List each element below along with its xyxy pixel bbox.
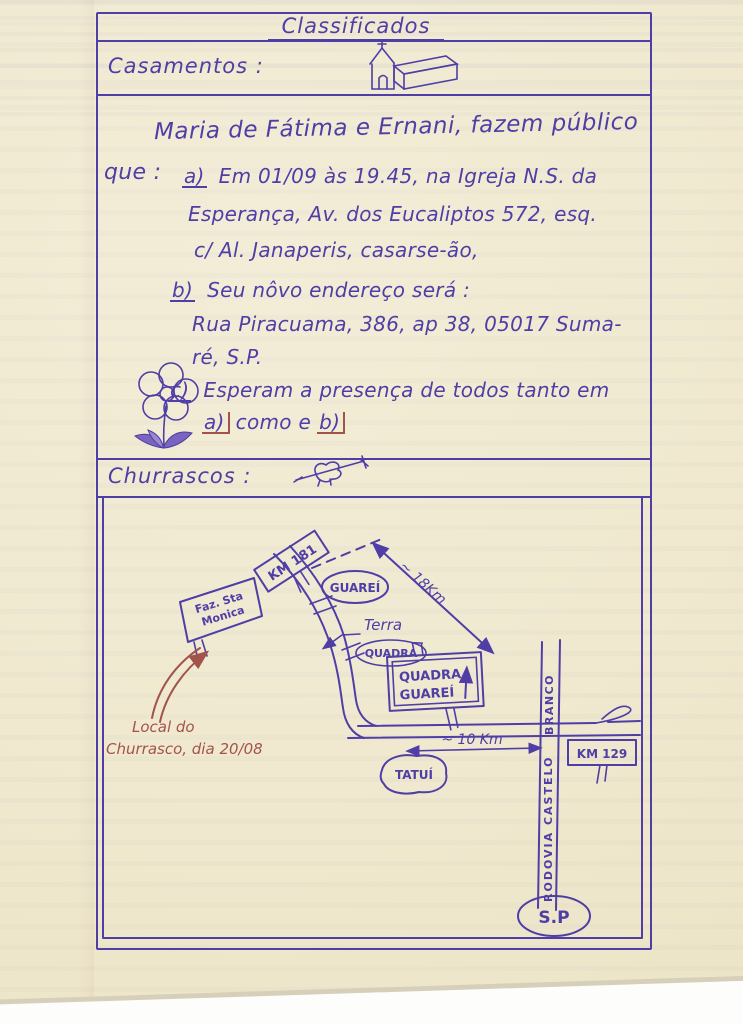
churrascos-label: Churrascos : xyxy=(108,464,251,488)
distance-arrow-10km xyxy=(408,748,540,751)
item-a-line3: c/ Al. Janaperis, casarse-ão, xyxy=(194,238,479,262)
highway-name-rodovia-castelo: RODOVIA CASTELO xyxy=(542,756,555,902)
quadra-oval: QUADRA xyxy=(356,640,426,666)
item-a-text: Em 01/09 às 19.45, na Igreja N.S. da xyxy=(219,164,598,188)
local-note-line1: Local do xyxy=(132,718,195,736)
item-c-line1: c)Esperam a presença de todos tanto em xyxy=(168,378,610,402)
announcement-headline: Maria de Fátima e Ernani, fazem público xyxy=(154,109,639,145)
red-arrow-to-farm xyxy=(152,648,200,718)
item-b-marker: b) xyxy=(170,280,195,302)
barbecue-skewer-icon xyxy=(290,450,376,492)
highway-name-branco: BRANCO xyxy=(543,674,556,735)
svg-text:GUAREÍ: GUAREÍ xyxy=(330,580,381,595)
item-a-line2: Esperança, Av. dos Eucaliptos 572, esq. xyxy=(188,202,597,226)
closing-text: como e xyxy=(236,410,311,434)
page-title: Classificados xyxy=(268,14,445,41)
tatui-town: TATUÍ xyxy=(381,755,447,793)
svg-text:QUADRA: QUADRA xyxy=(399,667,462,685)
scanned-classifieds-page: Classificados Casamentos : Churrascos : … xyxy=(0,0,743,1024)
item-b-line2: Rua Piracuama, 386, ap 38, 05017 Suma- xyxy=(192,312,622,336)
item-a-marker: a) xyxy=(182,166,207,188)
highway-right-edge xyxy=(556,640,560,910)
terra-label: Terra xyxy=(364,616,402,634)
guarei-town: GUAREÍ xyxy=(322,571,388,603)
item-b-text: Seu nôvo endereço será : xyxy=(207,278,470,302)
item-b-line1: b)Seu nôvo endereço será : xyxy=(170,278,470,302)
item-c-text: Esperam a presença de todos tanto em xyxy=(203,378,609,402)
svg-text:TATUÍ: TATUÍ xyxy=(395,767,434,782)
flower-icon xyxy=(118,358,220,456)
casamentos-label: Casamentos : xyxy=(108,54,264,78)
local-note-line2: Churrasco, dia 20/08 xyxy=(106,740,263,758)
item-a-line1: a)Em 01/09 às 19.45, na Igreja N.S. da xyxy=(182,164,597,188)
distance-10km-label: ~ 10 Km xyxy=(441,732,502,748)
svg-text:QUADRA: QUADRA xyxy=(365,647,418,660)
road-diagonal-right-edge xyxy=(290,546,376,726)
red-arrow-to-farm-2 xyxy=(160,653,206,722)
farm-sign: Faz. Sta Monica xyxy=(180,578,262,660)
church-icon xyxy=(356,38,474,94)
svg-text:KM 129: KM 129 xyxy=(577,747,627,761)
churrasco-map: ~ 18Km KM 181 GUAREÍ Faz. Sta Monica Loc… xyxy=(96,492,648,946)
svg-text:GUAREÍ: GUAREÍ xyxy=(399,685,455,704)
km129-sign: KM 129 xyxy=(568,740,636,783)
svg-text:S.P: S.P xyxy=(538,908,569,928)
distance-18km-label: ~ 18Km xyxy=(396,558,449,608)
announcement-que: que : xyxy=(104,160,161,185)
scan-fold-shadow xyxy=(78,0,94,1024)
closing-marker-b: b) xyxy=(317,412,345,434)
